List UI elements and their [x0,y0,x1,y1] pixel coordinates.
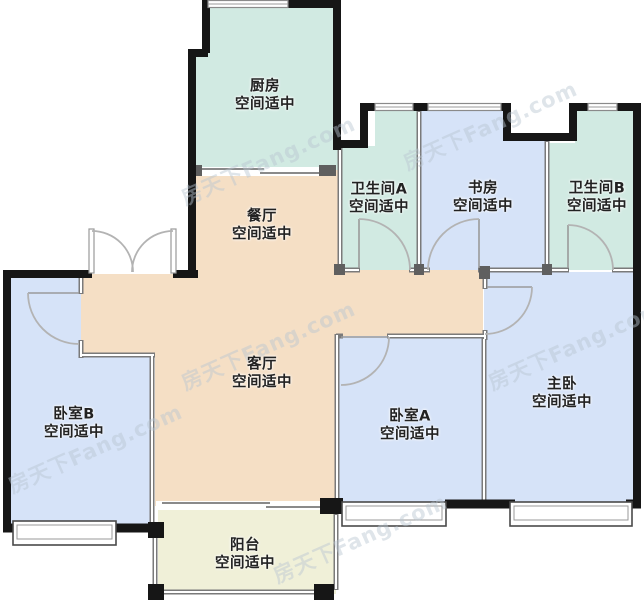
entry-door-leaf [171,229,176,273]
room-name: 卫生间B [567,181,627,199]
room-name: 书房 [453,181,513,199]
room-note: 空间适中 [453,198,513,216]
room-name: 餐厅 [232,209,292,227]
room-note: 空间适中 [532,394,592,412]
floorplan-canvas [0,0,644,600]
room-name: 客厅 [232,357,292,375]
room-name: 主卧 [532,377,592,395]
room-label-master: 主卧 空间适中 [532,377,592,412]
room-label-bedroom-b: 卧室B 空间适中 [44,407,104,442]
wall-post [479,266,490,279]
room-name: 卫生间A [349,182,409,200]
room-label-study: 书房 空间适中 [453,181,513,216]
room-note: 空间适中 [235,96,295,114]
wall-post [542,264,552,275]
room-note: 空间适中 [44,424,104,442]
room-note: 空间适中 [232,374,292,392]
balcony-post [148,522,164,538]
entry-door-arc [132,231,173,272]
wall-post [319,165,336,176]
room-name: 厨房 [235,79,295,97]
room-name: 卧室B [44,407,104,425]
room-label-living: 客厅 空间适中 [232,357,292,392]
room-label-balcony: 阳台 空间适中 [215,538,275,573]
room-note: 空间适中 [349,199,409,217]
room-note: 空间适中 [380,426,440,444]
room-label-bathroom-a: 卫生间A 空间适中 [349,182,409,217]
room-name: 卧室A [380,409,440,427]
entry-door-leaf [89,229,94,273]
room-note: 空间适中 [232,226,292,244]
entry-door-arc [92,231,133,272]
room-label-bathroom-b: 卫生间B 空间适中 [567,181,627,216]
room-name: 阳台 [215,538,275,556]
wall-post [414,264,424,275]
room-label-dining: 餐厅 空间适中 [232,209,292,244]
balcony-post [148,584,164,600]
balcony-post [314,584,334,600]
balcony-post [320,498,343,514]
room-label-kitchen: 厨房 空间适中 [235,79,295,114]
floorplan: 房天下Fang.com 房天下Fang.com 房天下Fang.com 房天下F… [0,0,644,600]
room-note: 空间适中 [215,555,275,573]
wall-post [334,264,345,275]
room-note: 空间适中 [567,198,627,216]
room-label-bedroom-a: 卧室A 空间适中 [380,409,440,444]
